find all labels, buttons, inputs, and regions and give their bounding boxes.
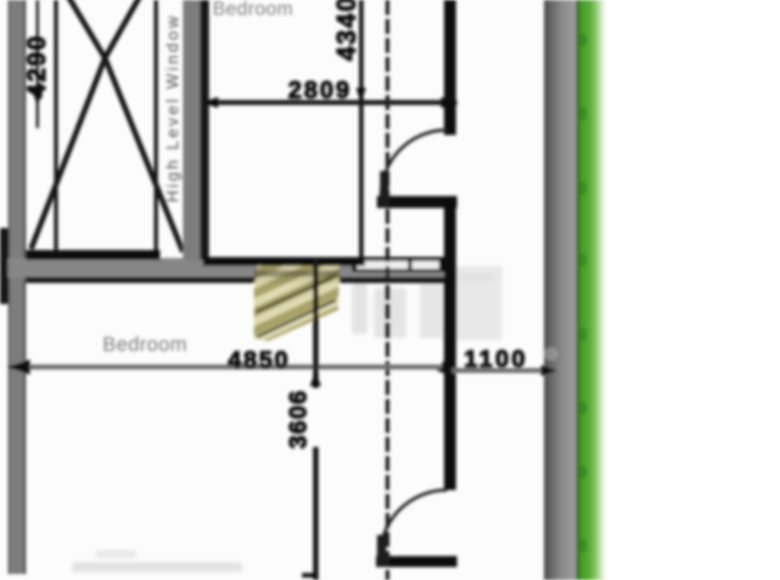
svg-text:4290: 4290 [23, 34, 51, 98]
svg-text:Bedroom: Bedroom [103, 334, 188, 356]
svg-text:4340: 4340 [331, 0, 361, 61]
svg-text:High Level Window: High Level Window [164, 14, 182, 203]
svg-text:2809: 2809 [288, 77, 351, 104]
svg-text:1100: 1100 [464, 346, 528, 373]
svg-text:Bedroom: Bedroom [213, 0, 294, 20]
svg-text:3606: 3606 [285, 389, 312, 448]
svg-text:4850: 4850 [228, 347, 290, 374]
